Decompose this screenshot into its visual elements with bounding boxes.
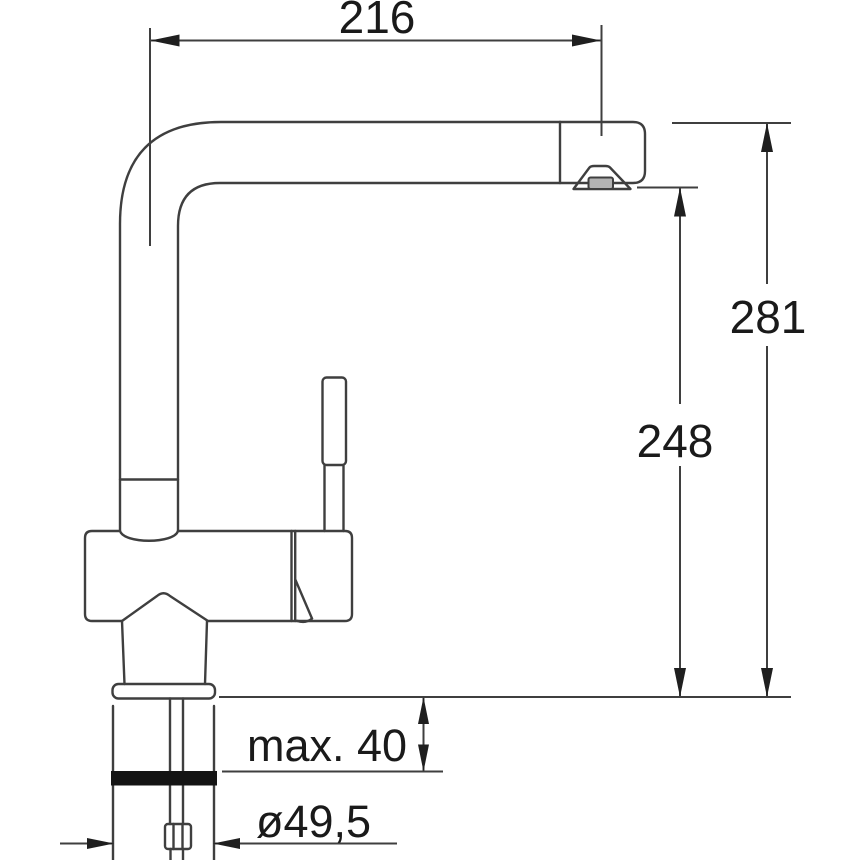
spout-arm-inner-edge bbox=[178, 183, 560, 531]
dimension-mount-thickness: max. 40 bbox=[222, 697, 443, 772]
seal-washer-band bbox=[111, 771, 217, 786]
arrowhead-right bbox=[572, 35, 601, 47]
dimension-hole-diameter: ø49,5 bbox=[60, 796, 397, 849]
arrowhead-bottom bbox=[674, 668, 686, 697]
handle-stem bbox=[325, 465, 344, 531]
dimension-label-248: 248 bbox=[637, 415, 714, 467]
dimension-label-281: 281 bbox=[730, 291, 807, 343]
arrowhead-bottom bbox=[418, 745, 429, 772]
dimension-outlet-height: 248 bbox=[637, 188, 714, 698]
mounting-nut-facets bbox=[174, 824, 183, 849]
mixer-body bbox=[85, 531, 352, 621]
arrowhead-bottom bbox=[761, 668, 773, 697]
arrowhead-top bbox=[761, 123, 773, 152]
dimension-overall-height: 281 bbox=[672, 123, 806, 697]
arrowhead-left bbox=[87, 838, 114, 849]
arrowhead-left bbox=[151, 35, 180, 47]
mounting-nut bbox=[165, 824, 191, 849]
technical-drawing-canvas: 216 281 248 max. 40 ø49,5 bbox=[0, 0, 860, 860]
body-seam-diagonal bbox=[296, 580, 313, 619]
base-neck bbox=[122, 621, 207, 684]
arrowhead-top bbox=[674, 188, 686, 217]
dimension-label-diameter: ø49,5 bbox=[256, 796, 371, 847]
aerator-insert bbox=[589, 178, 614, 190]
arrowhead-top bbox=[418, 697, 429, 724]
faucet-dimension-drawing: 216 281 248 max. 40 ø49,5 bbox=[0, 0, 860, 860]
dimension-label-216: 216 bbox=[339, 0, 416, 43]
base-flange bbox=[113, 684, 216, 699]
arrowhead-right bbox=[213, 838, 240, 849]
handle-grip bbox=[323, 378, 347, 466]
body-seam-lines bbox=[292, 531, 296, 621]
dimension-label-max40: max. 40 bbox=[247, 720, 407, 771]
